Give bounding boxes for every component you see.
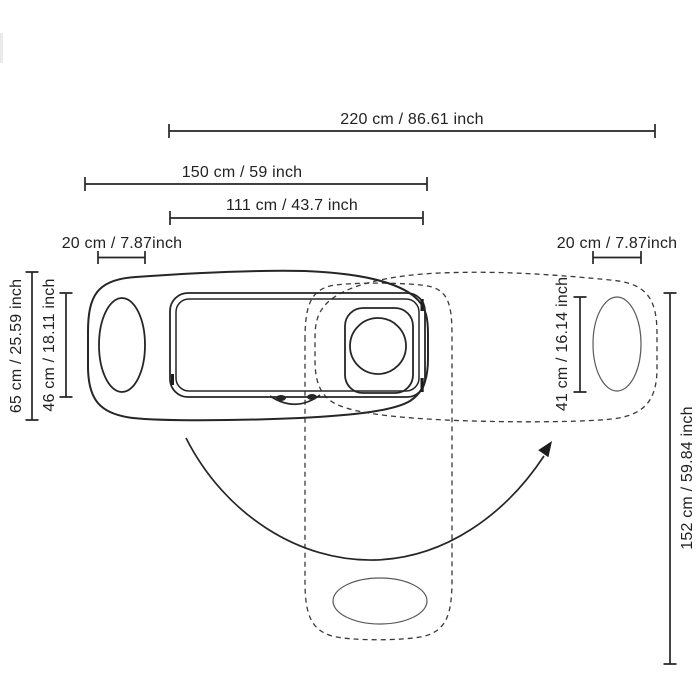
dim-label-swing-reach: 152 cm / 59.84 inch: [679, 406, 696, 549]
dim-label-tray-depth: 46 cm / 18.11 inch: [41, 278, 58, 411]
dim-label-table-depth: 65 cm / 25.59 inch: [8, 279, 25, 413]
dim-line-seat-pad-length: [574, 297, 587, 392]
dim-label-tray-width: 111 cm / 43.7 inch: [226, 197, 358, 214]
rotation-arrow-icon: [186, 438, 552, 560]
swivel-table-dimension-diagram: 220 cm / 86.61 inch 150 cm / 59 inch 111…: [0, 0, 700, 700]
seat-oval-extended-position: [593, 297, 641, 391]
pivot-circle: [350, 318, 406, 374]
tray-edge-mark-bottom-right: [421, 378, 424, 392]
rotation-arrow-arc: [186, 438, 544, 560]
dim-label-right-end-width: 20 cm / 7.87inch: [557, 235, 678, 252]
dim-line-swing-reach: [664, 293, 677, 664]
dim-label-total-width: 220 cm / 86.61 inch: [340, 111, 483, 128]
dim-label-left-end-width: 20 cm / 7.87inch: [62, 235, 183, 252]
table-outline-extended-position: [315, 272, 657, 422]
tray-edge-mark-top-right: [421, 299, 424, 311]
hinge-dot-left: [276, 395, 286, 401]
table-outline-mid-swing-position: [305, 283, 452, 640]
dim-label-table-width: 150 cm / 59 inch: [182, 164, 303, 181]
dim-line-tray-depth: [60, 293, 73, 397]
edge-artifact: [0, 33, 3, 63]
rotation-arrow-head: [538, 441, 552, 457]
hinge-dot-right: [307, 394, 317, 400]
seat-oval-left: [99, 298, 145, 392]
pivot-housing-square: [345, 308, 413, 393]
seat-oval-mid-swing-position: [333, 578, 427, 624]
table-closed-position: [88, 271, 428, 421]
dim-line-right-end-width: [593, 251, 641, 264]
dim-label-seat-pad-length: 41 cm / 16.14 inch: [554, 277, 571, 411]
dimension-diagram-page: 220 cm / 86.61 inch 150 cm / 59 inch 111…: [0, 0, 700, 700]
tray-edge-mark-bottom-left: [171, 374, 174, 385]
dim-line-table-depth: [26, 272, 39, 420]
tray-inner-border: [176, 299, 419, 391]
dim-line-left-end-width: [98, 251, 145, 264]
